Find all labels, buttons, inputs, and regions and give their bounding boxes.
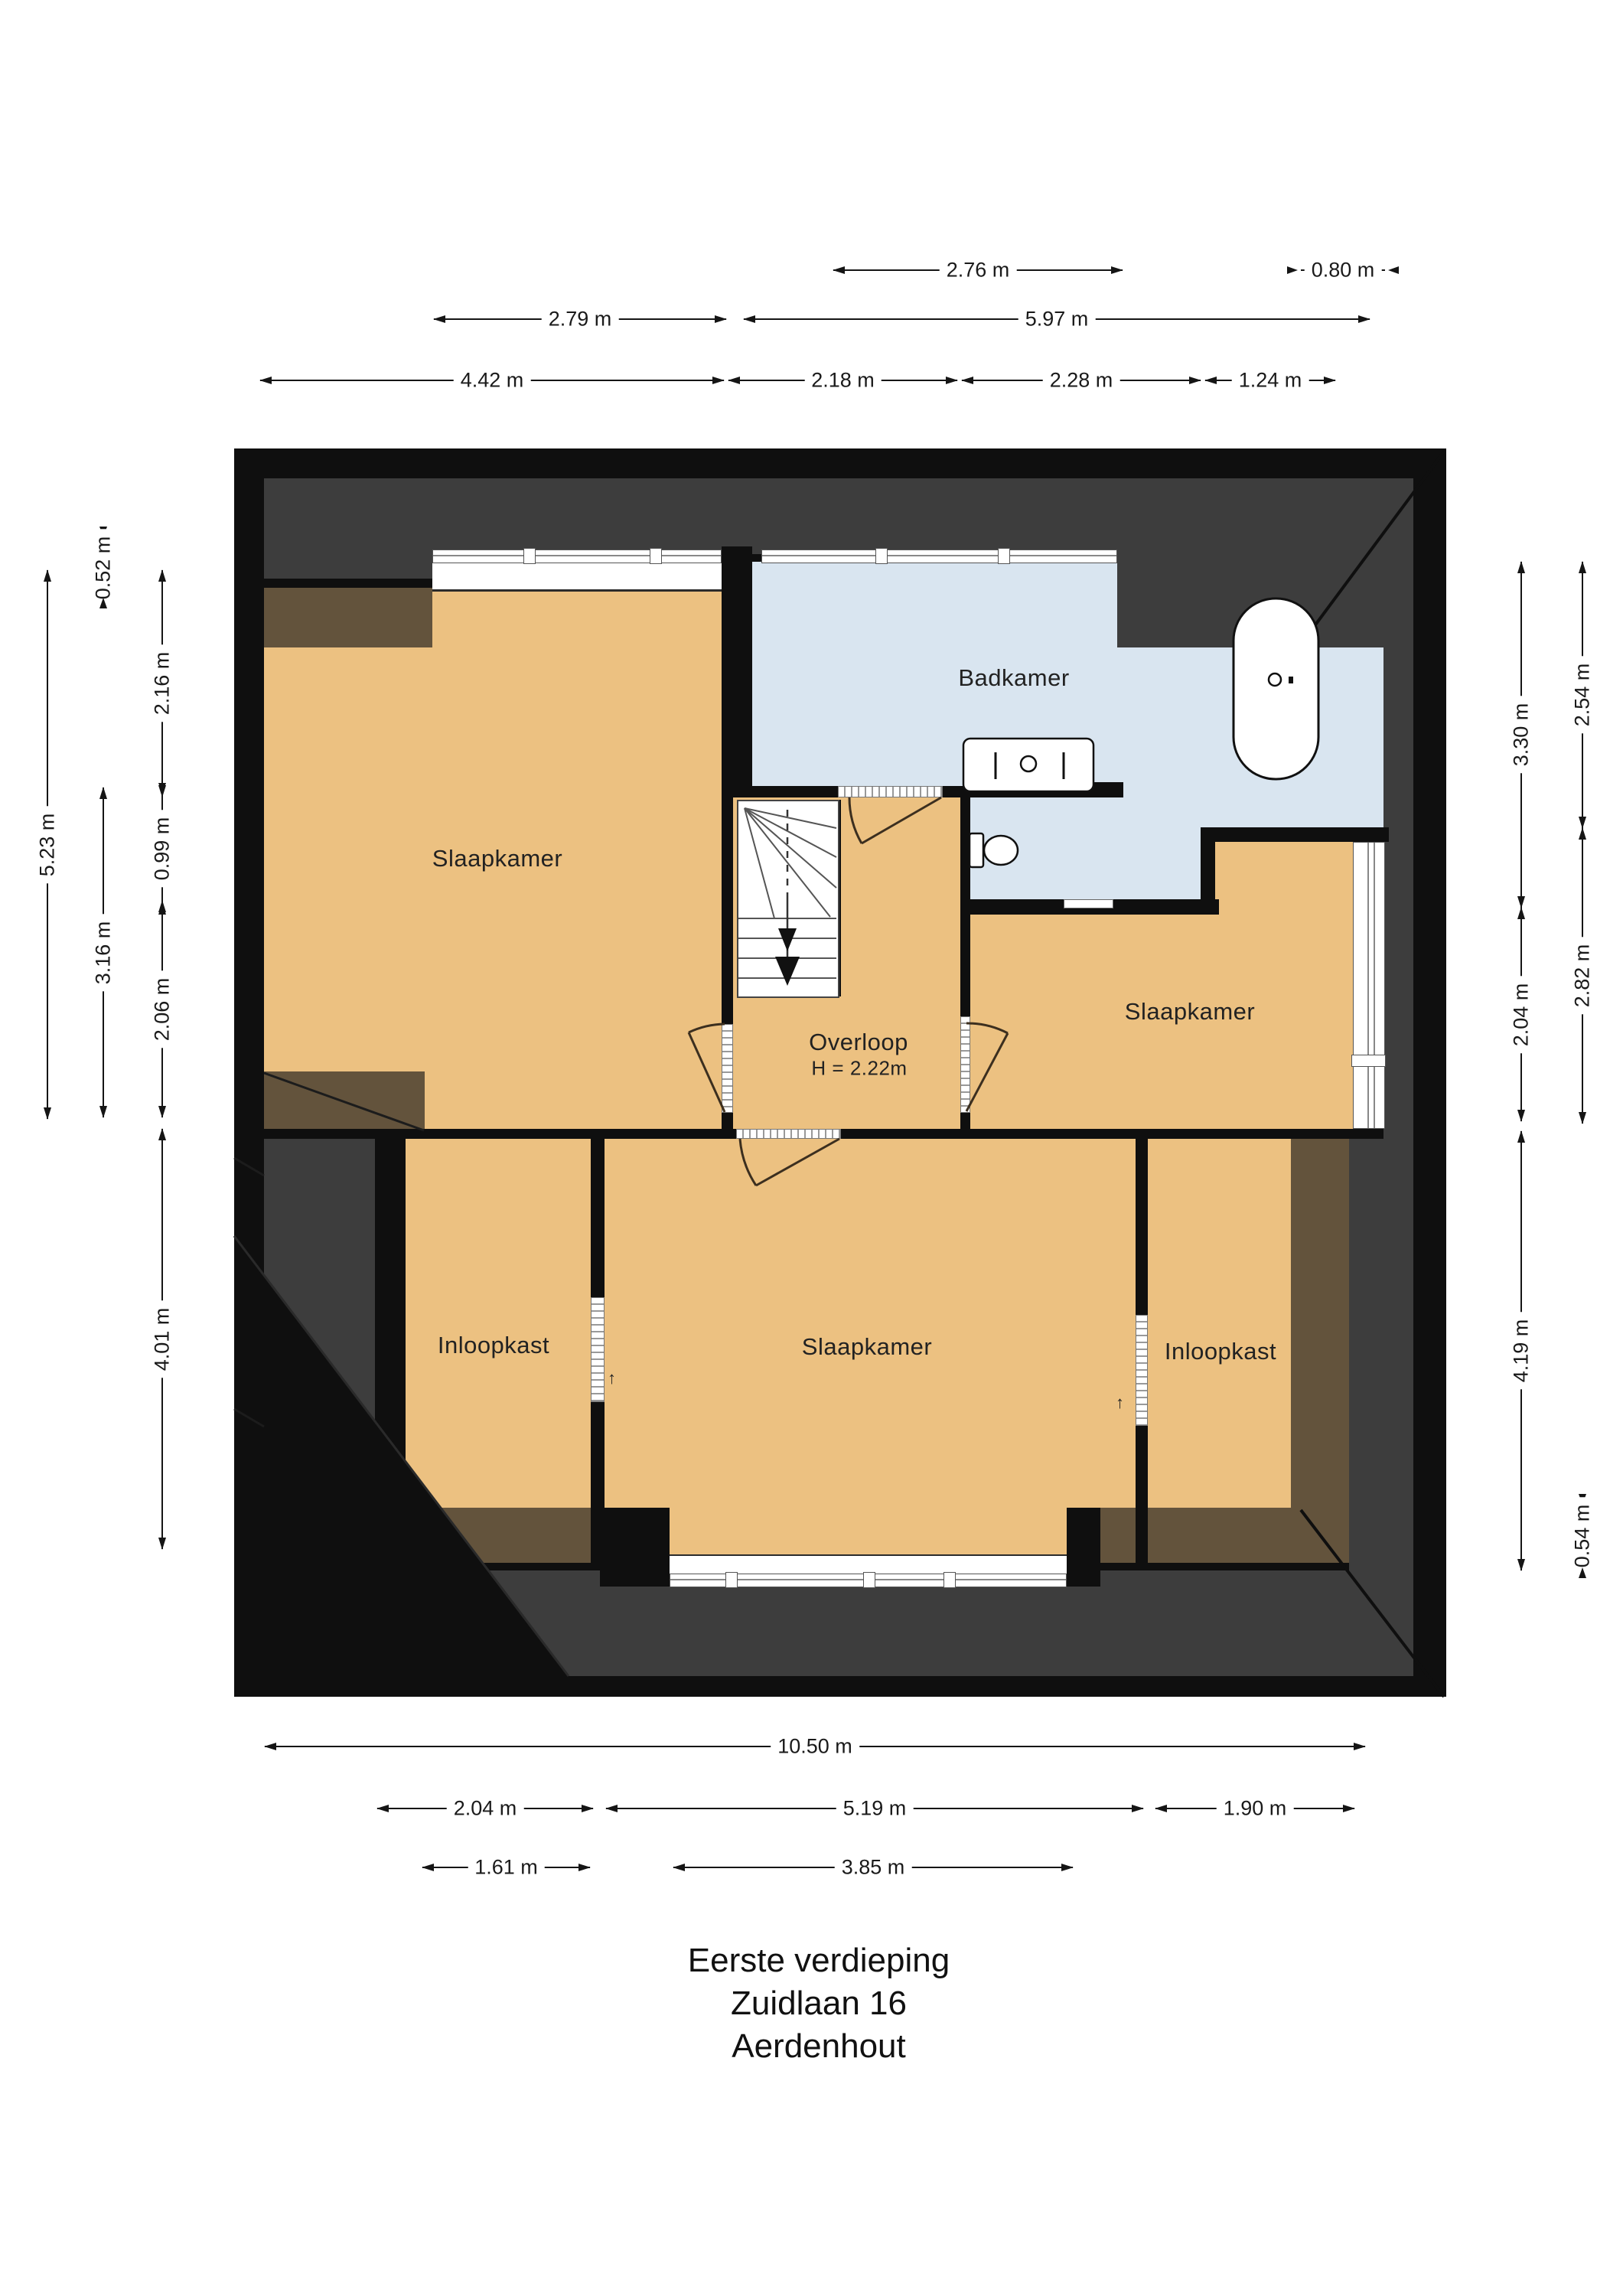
title-city: Aerdenhout [436, 2025, 1201, 2068]
stair-down-arrow-1 [778, 928, 797, 951]
roof-diagonal-topright [1299, 452, 1444, 647]
door-leaf-bedroomB [756, 1139, 839, 1186]
dim-top-124: 1.24 m [1205, 380, 1335, 381]
door-marker-closetL: ↑ [608, 1368, 616, 1388]
label-bedroom-right: Slaapkamer [1125, 998, 1255, 1026]
stair-down-arrow-2 [775, 957, 800, 986]
door-arc-bathroom [849, 797, 862, 843]
vanity-faucet [1021, 756, 1036, 771]
label-bedroom-bottom: Slaapkamer [802, 1333, 932, 1361]
dim-left-099: 0.99 m [161, 797, 163, 901]
dim-left-206: 2.06 m [161, 901, 163, 1117]
dim-left-401: 4.01 m [161, 1129, 163, 1549]
label-landing-height: H = 2.22m [811, 1057, 907, 1081]
dim-right-282: 2.82 m [1582, 828, 1583, 1124]
dim-right-330: 3.30 m [1520, 562, 1522, 908]
dim-right-254: 2.54 m [1582, 562, 1583, 828]
door-leaf-bedroomR [966, 1033, 1008, 1111]
dim-left-523: 5.23 m [47, 570, 48, 1119]
dim-bottom-385: 3.85 m [673, 1867, 1073, 1868]
toilet-bowl [984, 836, 1018, 865]
door-arc-bedroomTL [689, 1024, 725, 1032]
title-street: Zuidlaan 16 [436, 1982, 1201, 2025]
dim-top-279: 2.79 m [434, 318, 726, 320]
door-marker-closetR: ↑ [1116, 1393, 1124, 1413]
label-landing: Overloop [809, 1029, 908, 1056]
plan-title: Eerste verdieping Zuidlaan 16 Aerdenhout [436, 1939, 1201, 2068]
roof-diagonal-bottomleft [234, 1236, 569, 1676]
dim-bottom-204: 2.04 m [377, 1808, 593, 1809]
bathtub-drain [1269, 673, 1281, 686]
dim-top-597: 5.97 m [744, 318, 1370, 320]
door-leaf-bedroomTL [689, 1032, 725, 1112]
label-bedroom-topleft: Slaapkamer [432, 845, 562, 872]
roof-mark-left-a [234, 1158, 264, 1176]
roof-diagonal-midleft [264, 1073, 424, 1130]
roof-diagonal-bottomright [1301, 1510, 1444, 1697]
label-closet-left: Inloopkast [438, 1332, 549, 1359]
dim-top-442: 4.42 m [260, 380, 724, 381]
dim-right-204: 2.04 m [1520, 908, 1522, 1121]
bathtub [1234, 598, 1318, 779]
dim-bottom-161: 1.61 m [422, 1867, 590, 1868]
dim-bottom-519: 5.19 m [606, 1808, 1143, 1809]
title-floor: Eerste verdieping [436, 1939, 1201, 1982]
label-closet-right: Inloopkast [1165, 1338, 1276, 1365]
toilet-tank [970, 833, 983, 867]
door-arc-bedroomB [740, 1139, 756, 1186]
dim-left-216: 2.16 m [161, 570, 163, 797]
floorplan-page: ↑ ↑ Slaapkamer Badkamer Overloop H = 2.2… [0, 0, 1623, 2296]
dim-left-316: 3.16 m [103, 788, 104, 1117]
door-leaf-bathroom [862, 797, 941, 843]
dim-right-054: 0.54 m [1582, 1508, 1583, 1564]
dim-top-228: 2.28 m [962, 380, 1201, 381]
dim-top-080: 0.80 m [1301, 269, 1385, 271]
bathtub-faucet [1289, 677, 1293, 683]
dim-bottom-190: 1.90 m [1155, 1808, 1354, 1809]
dim-right-419: 4.19 m [1520, 1131, 1522, 1570]
dim-bottom-1050: 10.50 m [265, 1746, 1365, 1747]
dim-left-052: 0.52 m [103, 540, 104, 595]
door-arc-bedroomR [966, 1023, 1008, 1033]
label-bathroom: Badkamer [958, 664, 1069, 692]
dim-top-218: 2.18 m [728, 380, 957, 381]
dim-top-276: 2.76 m [833, 269, 1123, 271]
roof-mark-left-b [234, 1409, 264, 1427]
